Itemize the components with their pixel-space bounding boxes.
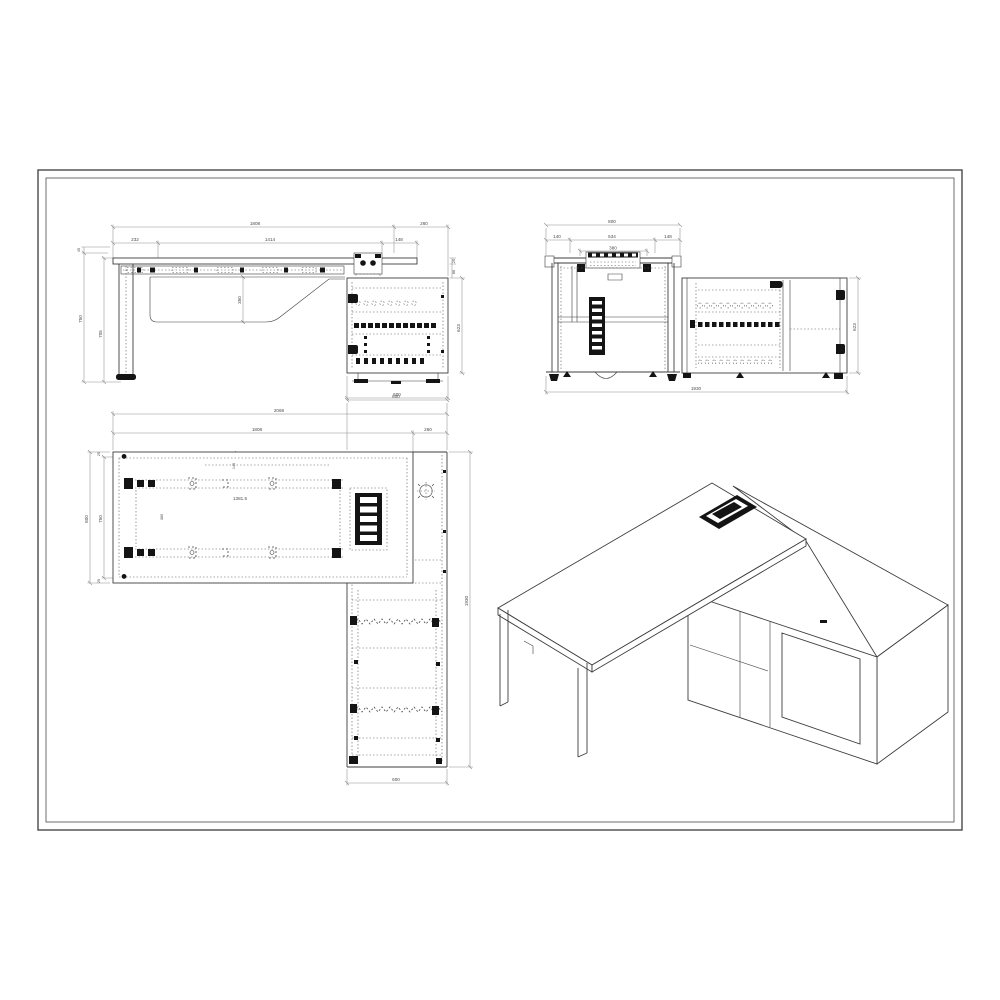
- dim-plan-cab-depth-bot: 600: [392, 777, 400, 782]
- dim-front-top-thickness: 45: [77, 248, 81, 252]
- dim-side-depth: 800: [608, 219, 616, 224]
- dim-front-gap1: 25: [452, 259, 456, 263]
- dim-plan-cab-depth-top: 600: [392, 394, 400, 399]
- dim-side-b: 534: [608, 234, 616, 239]
- dim-front-ext: 260: [420, 221, 428, 226]
- drawing-sheet: 1808 260 232 1414 148 45 750 705 350 25 …: [0, 0, 1000, 1000]
- front-underframe-beam: [121, 266, 344, 274]
- iso-door-handle: [820, 620, 827, 623]
- dim-front-total: 1808: [250, 221, 261, 226]
- dim-plan-t1: 25: [97, 452, 101, 456]
- dim-front-height-inner: 705: [98, 330, 103, 338]
- dim-side-box: 380: [609, 246, 617, 251]
- dim-front-c: 148: [395, 237, 403, 242]
- dim-front-gap2: 86: [452, 270, 456, 274]
- dim-plan-gap: 360: [160, 514, 164, 520]
- dim-front-panel: 350: [237, 296, 242, 304]
- plan-power-module: [350, 488, 387, 550]
- side-cable-strip: [589, 297, 605, 355]
- dim-plan-t2: 25: [97, 579, 101, 583]
- dim-plan-span: 1381.5: [233, 496, 247, 501]
- front-leg-foot: [116, 374, 136, 380]
- dim-side-a: 140: [553, 234, 561, 239]
- dim-side-c: 148: [664, 234, 672, 239]
- dim-plan-desk: 1808: [252, 427, 263, 432]
- dim-plan-ext: 260: [424, 427, 432, 432]
- dim-plan-total: 2068: [274, 408, 285, 413]
- dim-front-b: 1414: [265, 237, 276, 242]
- dim-plan-depth-inner: 750: [98, 515, 103, 523]
- dim-plan-depth-outer: 800: [84, 515, 89, 523]
- cad-drawing: 1808 260 232 1414 148 45 750 705 350 25 …: [0, 0, 1000, 1000]
- dim-plan-inset: 145: [232, 463, 236, 469]
- dim-front-height-outer: 750: [78, 315, 83, 323]
- dim-side-cab-height: 623: [852, 323, 857, 331]
- side-cabinet: [682, 278, 847, 379]
- front-cabinet: [347, 278, 448, 384]
- dim-side-total: 1930: [691, 386, 702, 391]
- dim-front-cab-height: 623: [456, 324, 461, 332]
- dim-plan-length: 1930: [464, 595, 469, 606]
- dim-front-a: 232: [131, 237, 139, 242]
